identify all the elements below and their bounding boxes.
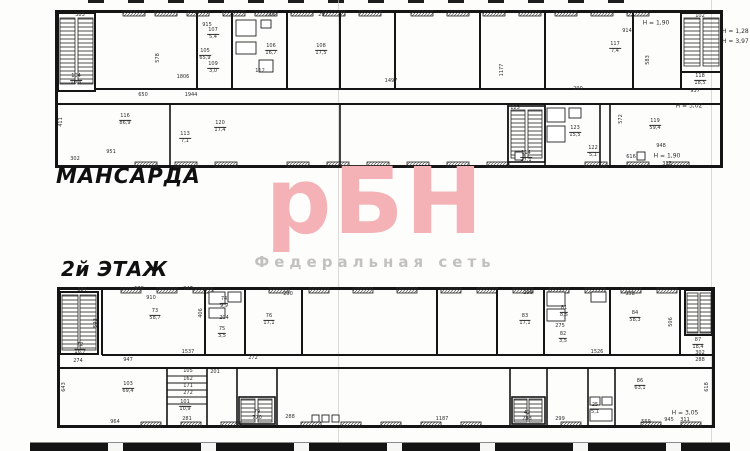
room-label: 10369,4	[122, 382, 134, 394]
dimension-label: 910	[146, 296, 156, 302]
dimension-label: 297	[318, 13, 328, 19]
dimension-label: 964	[110, 420, 120, 426]
height-note-line1: Н = 1,28	[722, 27, 749, 37]
dimension-label: 283	[522, 417, 532, 423]
watermark-subtitle: Федеральная сеть	[250, 253, 500, 271]
room-label: 7216,7	[74, 343, 85, 355]
dimension-label: 274	[73, 359, 83, 365]
dimension-label: 112	[255, 69, 265, 75]
dimension-label: 102	[695, 14, 705, 20]
dimension-label: Н = 3,02	[676, 104, 703, 111]
room-label: 1075,4	[207, 28, 219, 40]
dimension-label: 1187	[436, 417, 449, 423]
dimension-label: 299	[555, 417, 565, 423]
dimension-label: 951	[106, 150, 116, 156]
dimension-label: 618	[705, 382, 711, 392]
room-label: 1137,1	[179, 132, 191, 144]
dimension-label: 914	[622, 29, 632, 35]
room-label: 10565,9	[199, 49, 211, 61]
floor-plan-2nd-floor: 3845732479107358,75937216,72749471537406…	[57, 287, 715, 428]
room-label: 11686,9	[119, 114, 131, 126]
room-label: 1225,1	[587, 146, 599, 158]
dimension-label: 1177	[500, 64, 506, 77]
room-label: 8317,1	[519, 314, 530, 326]
dimension-label: 281	[182, 417, 192, 423]
dimension-label: 313	[662, 162, 672, 168]
room-label: 753,5	[218, 327, 226, 339]
room-label: 823,5	[559, 332, 567, 344]
watermark: рБН Федеральная сеть	[250, 158, 500, 271]
room-label: 12315,5	[569, 126, 581, 138]
dimension-label: 1944	[185, 93, 198, 99]
dimension-label: 1526	[591, 350, 604, 356]
room-label: 11959,4	[649, 119, 661, 131]
dimension-label: 204	[219, 316, 229, 322]
dimension-label: 578	[156, 53, 162, 63]
room-label: 1093,0	[207, 62, 219, 74]
room-label: 10817,5	[315, 44, 327, 56]
room-label: 10616,7	[265, 44, 277, 56]
room-label: 11818,5	[694, 74, 706, 86]
dimension-label: 948	[656, 144, 666, 150]
dimension-label: 125	[510, 106, 520, 112]
dimension-label: 506	[669, 317, 675, 327]
floor-plan-mansarda: 38391557810565,92991075,410616,729710817…	[55, 10, 723, 168]
scanned-floorplan-page: 38391557810565,92991075,410616,729710817…	[0, 0, 750, 450]
dimension-label: 583	[646, 55, 652, 65]
dimension-label: 650	[138, 93, 148, 99]
dimension-label: 272	[183, 391, 193, 397]
room-label: 255,1	[591, 403, 599, 415]
room-label: 10110,9	[179, 400, 191, 412]
dimension-label: 272	[248, 356, 258, 362]
dimension-label: 201	[210, 370, 220, 376]
dimension-label: 573	[134, 287, 144, 293]
mansarda-labels: 38391557810565,92991075,410616,729710817…	[55, 10, 723, 168]
dimension-label: 770	[252, 416, 262, 422]
room-label: 749,9	[220, 297, 228, 309]
room-label: 8663,1	[634, 379, 645, 391]
plan-title-floor2: 2й ЭТАЖ	[61, 257, 168, 281]
dimension-label: 171	[183, 384, 193, 390]
dimension-label: 290	[283, 292, 293, 298]
room-label: 1177,4	[609, 42, 621, 54]
dimension-label: 947	[123, 358, 133, 364]
scan-edge-marks	[88, 0, 648, 3]
dimension-label: 275	[555, 324, 565, 330]
dimension-label: 643	[62, 382, 68, 392]
room-label: 10410,4	[70, 74, 82, 86]
floor2-labels: 3845732479107358,75937216,72749471537406…	[57, 287, 715, 428]
dimension-label: 105	[183, 369, 193, 375]
dimension-label: 247	[183, 287, 193, 293]
dimension-label: 288	[285, 415, 295, 421]
room-label: 8718,4	[692, 338, 703, 350]
dimension-label: 288	[695, 358, 705, 364]
room-label: 7358,7	[149, 309, 160, 321]
dimension-label: 302	[695, 351, 705, 357]
room-label: 7617,1	[263, 314, 274, 326]
dimension-label: 937	[690, 89, 700, 95]
dimension-label: 383	[75, 13, 85, 19]
watermark-logo: рБН	[250, 158, 500, 245]
dimension-label: 162	[183, 377, 193, 383]
dimension-label: 299	[265, 13, 275, 19]
dimension-label: 945	[664, 418, 674, 424]
plan-title-mansarda: МАНСАРДА	[56, 164, 201, 188]
dimension-label: 593	[94, 318, 100, 328]
room-label: 818,5	[560, 306, 568, 318]
dimension-label: 1806	[177, 75, 190, 81]
dimension-label: 572	[619, 114, 625, 124]
dimension-label: 290	[573, 87, 583, 93]
dimension-label: 569	[641, 420, 651, 426]
dimension-label: 384	[77, 288, 87, 294]
dimension-label: 958	[625, 292, 635, 298]
dimension-label: 296	[523, 291, 533, 297]
dimension-label: 1497	[385, 79, 398, 85]
dimension-label: 406	[199, 308, 205, 318]
dimension-label: 616	[626, 155, 636, 161]
room-label: 11427,1	[520, 151, 532, 163]
height-note: Н = 1,28 Н = 3,97	[722, 27, 749, 46]
room-label: 12017,4	[214, 121, 226, 133]
height-note-line2: Н = 3,97	[722, 37, 749, 47]
room-label: 8458,3	[629, 311, 640, 323]
dimension-label: Н = 1,90	[643, 21, 670, 28]
dimension-label: 311	[680, 418, 690, 424]
dimension-label: 411	[59, 117, 65, 127]
dimension-label: Н = 1,90	[654, 154, 681, 161]
dimension-label: 1537	[182, 350, 195, 356]
dimension-label: 302	[70, 157, 80, 163]
